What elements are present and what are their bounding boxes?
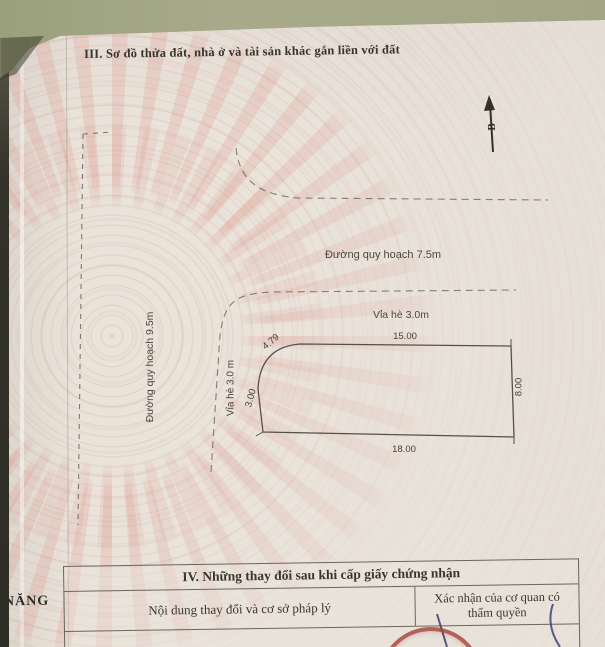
column-header-change-content: Nội dung thay đổi và cơ sở pháp lý	[64, 587, 416, 631]
column-header-authority-confirmation: Xác nhận của cơ quan có thẩm quyền	[415, 584, 579, 625]
booklet-dark-edge	[0, 44, 9, 647]
left-edge-partial-text: NĂNG	[4, 594, 50, 611]
paper-light-wash	[0, 14, 605, 647]
page-fold-highlight	[20, 36, 24, 647]
certificate-page	[0, 14, 605, 647]
photo-of-land-certificate: III. Sơ đồ thửa đất, nhà ở và tài sản kh…	[0, 0, 605, 647]
section-iv-table: IV. Những thay đổi sau khi cấp giấy chứn…	[63, 558, 581, 647]
